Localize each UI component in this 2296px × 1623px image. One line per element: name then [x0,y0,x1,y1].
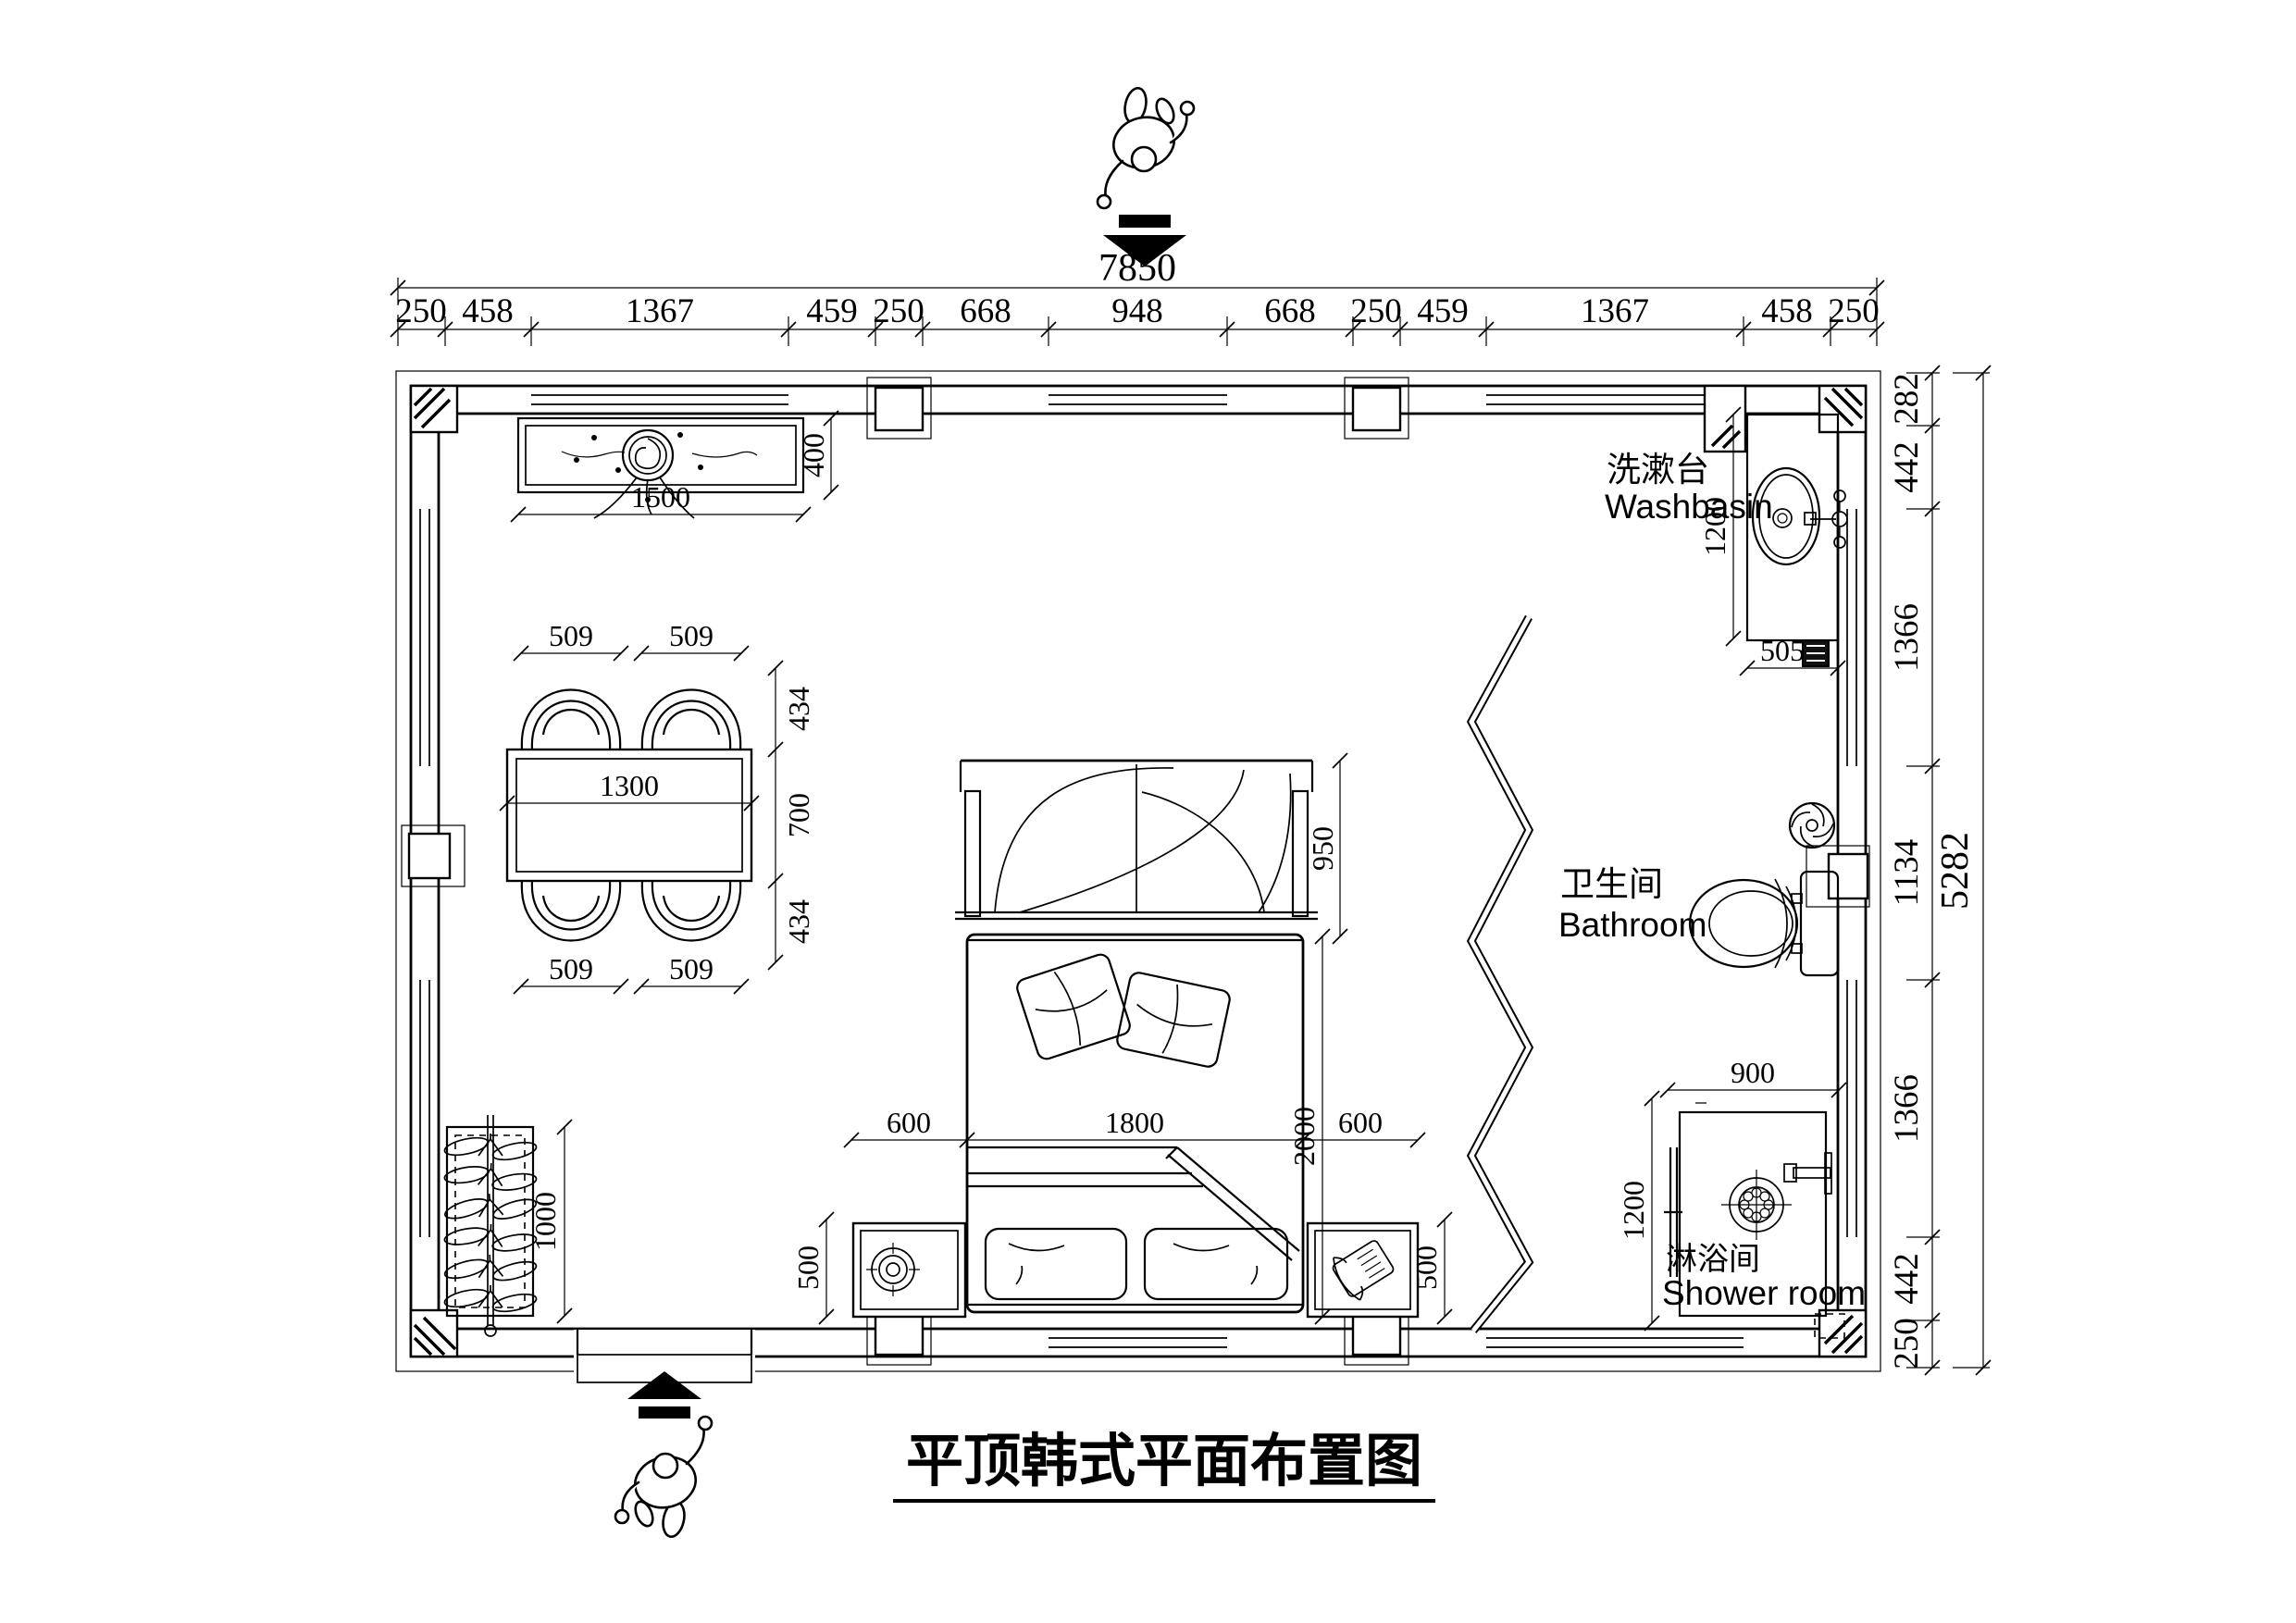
nightstand-right [1308,1223,1418,1317]
chair-top-left [522,690,620,750]
bed-group: 950 2000 600 1800 600 500 500 [791,753,1452,1324]
dim-lamp-width: 1500 [631,480,690,514]
clothes-rack: 1000 [442,1115,572,1336]
entry-arrow-bottom-icon [627,1371,701,1399]
bathroom-area: 卫生间 Bathroom [1558,803,1838,975]
dim-chair-br: 509 [669,952,714,985]
dim-top-11: 458 [1761,292,1813,330]
pillow-decor-left [1015,952,1133,1061]
pillow-decor-right [1115,971,1231,1068]
shower-drain-icon [1721,1170,1792,1240]
dim-chair-tr: 509 [669,619,714,652]
folding-partition [1471,617,1529,1331]
dim-chair-tl: 509 [549,619,593,652]
door-opening [574,1330,755,1372]
floor-drain-round-icon [1790,803,1834,848]
label-bathroom-zh: 卫生间 [1560,865,1663,903]
dim-chair-depth-top: 434 [782,687,815,731]
toilet-icon [1690,872,1838,975]
shower-fixture-icon [1784,1153,1831,1194]
right-dimension-chain: 282 442 1366 1134 1366 442 250 5282 [1888,365,1991,1375]
dim-right-5: 442 [1888,1253,1926,1305]
bed-canopy [955,761,1318,919]
dim-bed-left-gap: 600 [887,1106,931,1139]
dim-top-6: 948 [1111,292,1163,330]
dim-right-3: 1134 [1888,839,1926,907]
dim-top-3: 459 [806,292,858,330]
dining-set: 509 509 509 509 1300 434 700 434 [500,619,815,994]
floor-plan-drawing: 1500 400 509 509 509 509 1300 434 700 43… [0,0,2296,1623]
entry-bottom [615,1371,712,1539]
person-figure-top [1098,86,1194,208]
dim-right-2: 1366 [1888,603,1926,672]
dim-shower-depth: 1200 [1617,1181,1650,1240]
entry-top [1098,86,1194,266]
ceiling-lamp-icon [623,430,673,480]
label-washbasin-zh: 洗漱台 [1607,451,1709,489]
dim-bed-right-gap: 600 [1338,1106,1383,1139]
dim-chair-bl: 509 [549,952,593,985]
dim-top-5: 668 [960,292,1011,330]
wall-stub-washbasin [1705,386,1745,452]
entry-arrow-bar-bottom [639,1406,690,1419]
dim-washbasin-width: 505 [1760,634,1805,667]
top-dimension-chain: 7850 250 458 1367 459 250 668 948 668 25… [391,247,1884,346]
ceiling-lamp: 1500 400 [511,411,838,522]
dim-top-8: 250 [1350,292,1402,330]
dim-top-4: 250 [873,292,925,330]
dim-bed-canopy: 950 [1306,826,1339,871]
dim-top-12: 250 [1828,292,1880,330]
person-figure-bottom [615,1417,712,1539]
dim-top-7: 668 [1264,292,1316,330]
pillow-left [986,1229,1126,1299]
dim-bed-width: 1800 [1105,1106,1164,1139]
bed-sheet-lines [967,1147,1203,1186]
shower-area: 900 1200 淋浴间 Shower room [1617,1056,1866,1331]
chair-bottom-right [642,881,740,941]
dim-right-0: 282 [1888,373,1926,425]
floor-plan-sheet: 1500 400 509 509 509 509 1300 434 700 43… [0,0,2296,1623]
blanket-fold [1166,1147,1299,1260]
dim-top-0: 250 [395,292,447,330]
dim-right-6: 250 [1888,1318,1926,1369]
dim-nightstand-right: 500 [1409,1245,1443,1290]
dim-right-4: 1366 [1888,1074,1926,1143]
dim-chair-depth-bottom: 434 [782,899,815,944]
entry-arrow-bar-top [1119,215,1171,228]
dim-lamp-depth: 400 [797,433,830,477]
dim-table-depth: 700 [782,793,815,837]
dim-right-total: 5282 [1934,832,1977,910]
dim-top-9: 459 [1417,292,1469,330]
dim-table-width: 1300 [600,769,659,802]
dim-shower-width: 900 [1731,1056,1775,1089]
dim-rack-length: 1000 [528,1192,562,1251]
dim-nightstand-left: 500 [791,1245,825,1290]
label-washbasin-en: Washbasin [1605,488,1773,526]
title-text: 平顶韩式平面布置图 [906,1430,1422,1493]
chair-top-right [642,690,740,750]
drawing-title: 平顶韩式平面布置图 [893,1430,1435,1501]
dim-bed-length: 2000 [1287,1107,1321,1166]
dim-top-10: 1367 [1581,292,1649,330]
chair-bottom-left [522,881,620,941]
dim-top-2: 1367 [626,292,694,330]
nightstand-left [853,1223,965,1317]
dim-top-1: 458 [462,292,514,330]
label-shower-en: Shower room [1662,1274,1866,1312]
label-shower-zh: 淋浴间 [1666,1242,1760,1277]
dim-right-1: 442 [1888,441,1926,493]
window-band-top [531,395,1744,404]
label-bathroom-en: Bathroom [1558,906,1706,944]
